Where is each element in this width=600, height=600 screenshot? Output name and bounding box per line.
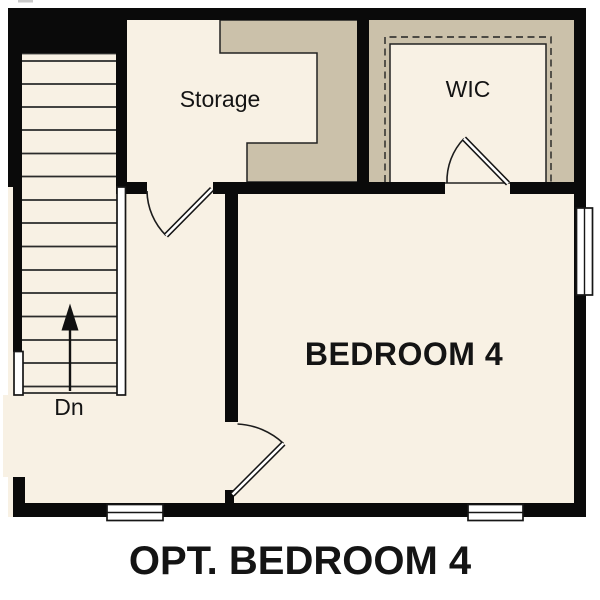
window-bottom-left — [107, 505, 163, 521]
bedroom-4-room-label: BEDROOM 4 — [244, 338, 564, 370]
plan-title: OPT. BEDROOM 4 — [30, 541, 570, 581]
wall-bedroom-left — [225, 182, 238, 422]
wall-storage-wic-divider — [357, 8, 369, 194]
scan-artifact-dash — [18, 0, 33, 3]
stair-railing — [117, 187, 126, 395]
wall-left-upper — [8, 8, 22, 187]
wall-stair-right — [116, 8, 127, 187]
bedroom-door — [233, 424, 284, 495]
wic-room-label: WIC — [398, 78, 538, 101]
window-bottom-right — [468, 505, 523, 521]
floor-plan: Storage WIC Dn BEDROOM 4 OPT. BEDROOM 4 — [0, 0, 600, 600]
wall-interior-mid — [213, 182, 445, 194]
wall-left-mid — [13, 187, 22, 352]
stairs-down-label: Dn — [29, 396, 109, 419]
wic-interior — [390, 44, 546, 183]
wall-top — [8, 8, 586, 20]
window-right — [577, 208, 593, 295]
bedroom-door-swing — [238, 424, 284, 444]
storage-door — [147, 189, 212, 236]
wall-interior-right — [510, 182, 586, 194]
stair-post-left — [14, 352, 23, 396]
wall-left-lower — [13, 477, 25, 507]
storage-door-swing — [147, 191, 166, 236]
storage-room-label: Storage — [140, 88, 300, 111]
